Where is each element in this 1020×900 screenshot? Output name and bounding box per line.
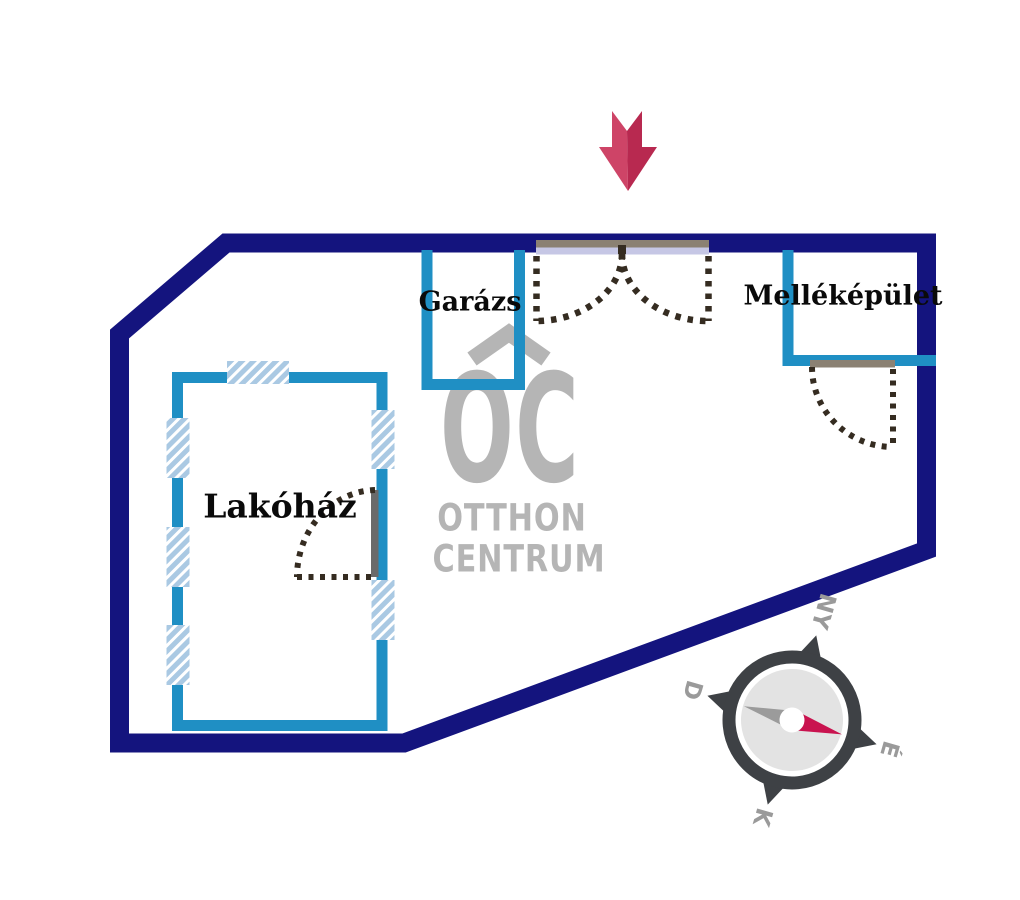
outbuilding-label: Melléképület: [743, 281, 942, 312]
site-plan-drawing: [0, 0, 1020, 900]
house-label: Lakóház: [203, 487, 357, 526]
floor-plan-canvas: OC OTTHON CENTRUM: [0, 0, 1020, 900]
window-hatch: [167, 418, 190, 478]
window-hatch: [227, 361, 289, 384]
window-hatch: [372, 580, 395, 640]
garage-label: Garázs: [419, 287, 522, 318]
gate-swing-arcs: [537, 254, 709, 321]
window-hatch: [167, 625, 190, 685]
compass-icon: [683, 611, 901, 829]
window-hatch: [372, 410, 395, 469]
outbuilding-door: [810, 360, 895, 447]
window-hatch: [167, 527, 190, 587]
entrance-arrow-icon: [599, 111, 657, 191]
gate: [536, 240, 709, 321]
house-outline: [178, 378, 383, 726]
